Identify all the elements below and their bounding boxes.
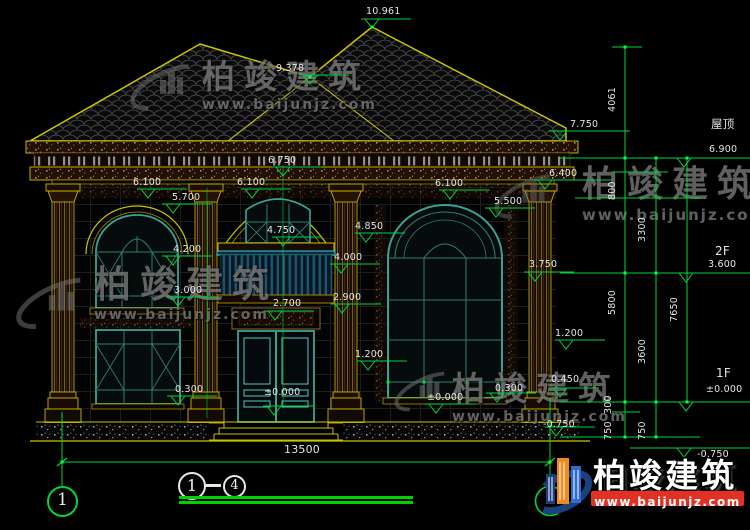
title-block: 1 1 4 轴立面图 1:100: [0, 0, 750, 525]
title-axis-end-bubble: 4: [223, 475, 246, 498]
title-axis-separator: [205, 484, 221, 487]
title-underline: [179, 496, 413, 499]
cad-viewer-canvas: { "drawing": { "title": { "axis_start": …: [0, 0, 750, 525]
axis-bubble-1: 1: [47, 486, 78, 517]
title-underline: [179, 501, 413, 504]
